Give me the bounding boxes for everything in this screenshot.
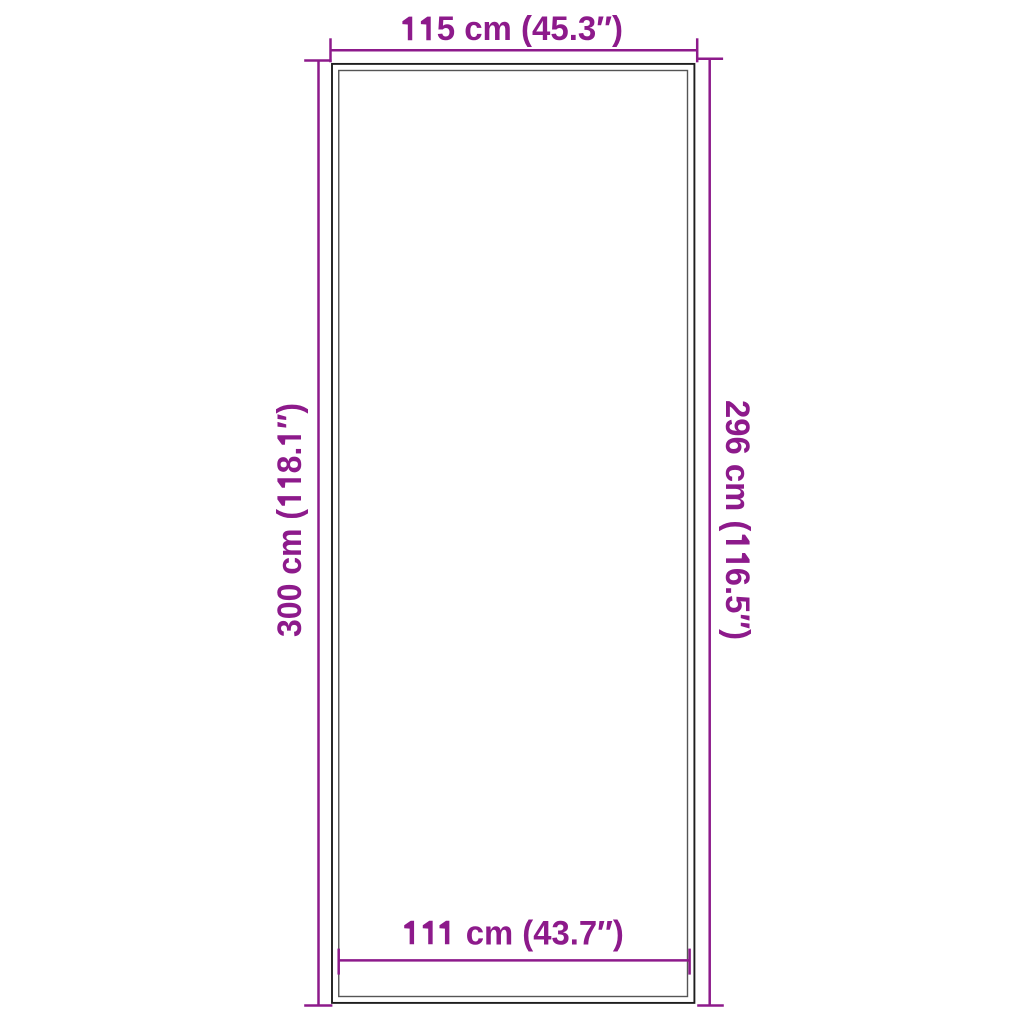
svg-text:cm (43.7″): cm (43.7″) (402, 914, 624, 952)
svg-text:296 cm ( 6.5″): 296 cm ( 6.5″) (718, 400, 756, 640)
svg-text:5 cm (45.3″): 5 cm (45.3″) (400, 10, 623, 48)
